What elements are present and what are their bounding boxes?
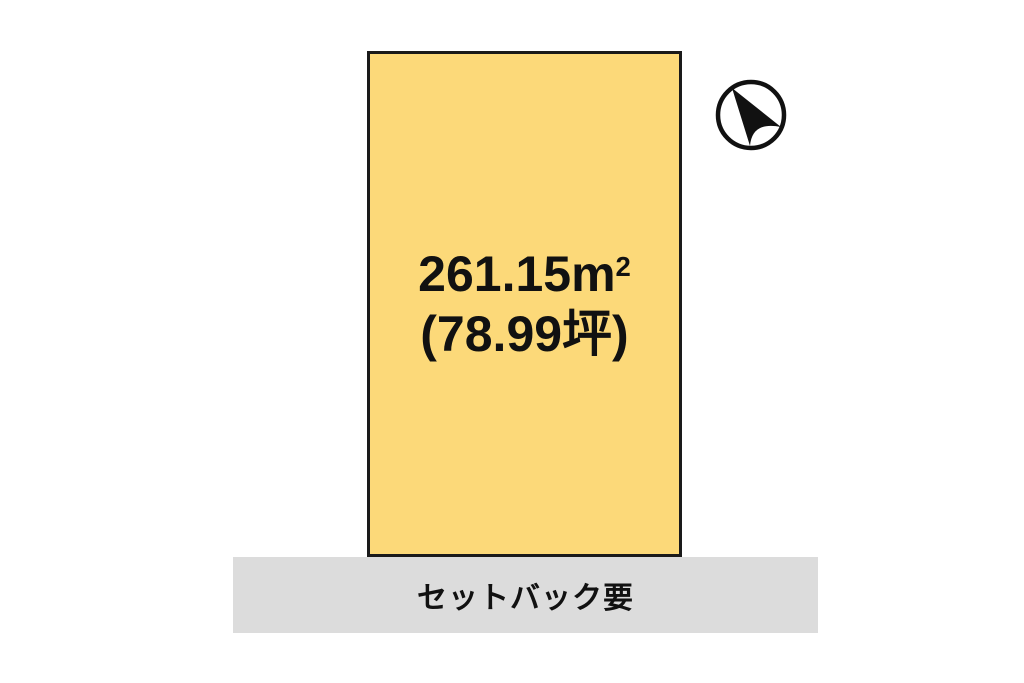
- setback-label: セットバック要: [417, 573, 634, 617]
- plot-area-label: 261.15m2 (78.99坪): [418, 244, 631, 364]
- land-plot: 261.15m2 (78.99坪): [367, 51, 682, 557]
- plot-area-tsubo: (78.99坪): [418, 304, 631, 364]
- sqm-superscript: 2: [616, 251, 631, 282]
- north-arrow-svg: [715, 79, 787, 151]
- site-plan-canvas: セットバック要 261.15m2 (78.99坪): [0, 0, 1024, 683]
- north-arrow-icon: [715, 79, 787, 151]
- setback-road-strip: セットバック要: [233, 557, 818, 633]
- plot-area-sqm: 261.15m2: [418, 244, 631, 304]
